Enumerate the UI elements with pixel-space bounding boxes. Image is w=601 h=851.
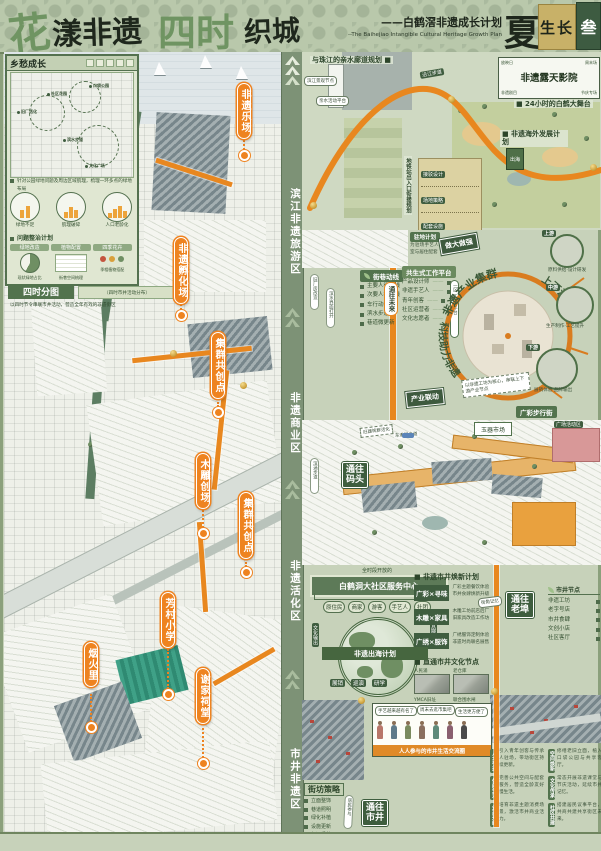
industry-diagram-band: 旧厂房改造 滨水界面打开 通往未来 街巷动线 主要人行动线 次要人行动线 车行动… xyxy=(302,230,601,420)
legend-item: 社区客厅 xyxy=(548,634,570,643)
street-tag-text: 广彩步行街 xyxy=(520,407,553,417)
subtitle-cn: ——白鹤滘非遗成长计划 xyxy=(330,14,502,30)
midstream-note: 生产制作·工艺提升 xyxy=(546,324,600,331)
plaza-label: 广场活动区 xyxy=(554,421,583,428)
oversea-note: ■ 非遗海外发展计划 xyxy=(500,130,568,147)
table-col-header: 植物配置 xyxy=(51,244,90,251)
street-road xyxy=(490,713,601,736)
roof-row xyxy=(361,481,417,513)
street-tag: 广彩步行街 xyxy=(516,406,557,418)
mini-plan xyxy=(302,230,408,268)
cinema-title: 非遗露天影院 xyxy=(499,70,599,84)
node-marker xyxy=(240,382,247,389)
node-marker xyxy=(358,697,365,704)
legend-item: 文创小店 xyxy=(548,625,570,634)
map-pin-label: 文化广场 xyxy=(89,163,105,169)
chevron-up-icon xyxy=(285,680,300,689)
chart-label: 人口老龄化 xyxy=(102,222,132,228)
speech-bubble: 滨江景观节点 xyxy=(304,76,337,86)
upstream-tag: 上游 xyxy=(542,230,556,237)
legend-item: 老字号店 xyxy=(548,606,570,615)
legend: 市井节点 非遗工坊 老字号店 市井食肆 文创小店 社区客厅 xyxy=(548,585,600,644)
pair-tag: 木雕×家具 xyxy=(414,609,449,625)
future-bubble: 通往未来 xyxy=(384,282,398,316)
inset-map: 旧厂活化 社区花园 口袋公园 滨水步道 文化广场 xyxy=(10,72,134,178)
street-axon-image-right xyxy=(490,695,601,743)
poster: 花 漾非遗 四时 织城 ——白鹤滘非遗成长计划 --The Baihejiao … xyxy=(0,0,601,851)
cinema-tag: 节庆专场 xyxy=(581,90,597,96)
section-header: 社区共建 xyxy=(548,803,555,827)
map-pin-label: 旧厂活化 xyxy=(21,109,37,115)
org-chip: 原住民 xyxy=(323,601,346,613)
side-pill: 滨涌步道 xyxy=(310,458,319,494)
legend-item: 市井食肆 xyxy=(548,616,570,625)
sailboat-icon xyxy=(154,62,166,75)
cinema-tag: 周末场 xyxy=(585,60,597,66)
callout-cluster-point-1: 集群共创点 xyxy=(211,332,225,399)
nav-dock: 通往码头 xyxy=(342,462,368,488)
legend-item: 非遗工坊 xyxy=(548,597,570,606)
nav-market: 通往市井 xyxy=(362,800,388,826)
sailboat-icon xyxy=(236,66,248,79)
downstream-note: 展销体验·品牌输出 xyxy=(534,388,594,395)
node-marker xyxy=(310,202,317,209)
map-pin-label: 滨水步道 xyxy=(67,137,83,143)
upstream-circle xyxy=(550,234,584,268)
globe-pill: 研学 xyxy=(372,679,387,687)
globe-pill: 展销 xyxy=(330,679,345,687)
roof-row xyxy=(431,458,492,484)
midstream-tag: 中游 xyxy=(546,284,560,291)
village-plan: 通往码头 玉器市场 广场活动区 东漖涌步道 旧建筑群活化 滨涌步道 xyxy=(302,420,601,565)
callout-incubator: 非遗孵化场 xyxy=(174,237,188,304)
speech-bubble: 周末去逛市集吧 xyxy=(417,705,455,715)
strategy-header: 街坊策略 xyxy=(304,783,344,796)
car-icon xyxy=(402,433,414,438)
node-marker xyxy=(491,688,498,695)
cinema-info-box: 放映日 周末场 非遗露天影院 非遗剧目 节庆专场 xyxy=(498,57,600,99)
chevron-up-icon xyxy=(285,670,300,679)
zone-label-4: 市井非遗区 xyxy=(282,704,303,851)
globe-pill: 巡演 xyxy=(351,679,366,687)
node-marker xyxy=(170,350,177,357)
zone-strip: 滨江非遗旅游区 非遗商业区 非遗活化区 市井非遗区 xyxy=(281,52,304,832)
flower-icon xyxy=(100,256,106,262)
note-pill: 滨水界面打开 xyxy=(326,288,335,328)
photo-thumb xyxy=(453,674,489,694)
section-text: 完善公共空间与配套服务，营造全龄友好慢生活。 xyxy=(499,776,544,800)
callout-woodcarving: 木雕创场 xyxy=(196,453,210,509)
callout-dot xyxy=(86,722,97,733)
strategy-item: 设施更新 xyxy=(311,823,331,832)
downstream-tag: 下游 xyxy=(526,344,540,351)
person-figure xyxy=(391,725,397,739)
table-col-header: 绿地改造 xyxy=(10,244,49,251)
metro-strip-label: 地铁站出入口衔接规划 xyxy=(404,156,412,215)
table-col-note: 现状绿地占比 xyxy=(10,275,49,281)
pair-line: 市井食肆焕新升级 xyxy=(452,592,489,597)
callout-dot xyxy=(213,407,224,418)
subtitle-block: ——白鹤滘非遗成长计划 --The Baihejiao Intangible C… xyxy=(330,14,502,38)
person-figure xyxy=(433,725,439,739)
analysis-header-text: 乡愁成长 xyxy=(10,57,46,70)
people-banner: 人人参与的市井生活交流圈 xyxy=(373,745,491,756)
panel-subheader: 配套设施 xyxy=(421,223,445,230)
pair-tag: 广彩×寻味 xyxy=(414,585,449,601)
title-part-4: 织城 xyxy=(243,9,300,51)
waterfront-header: 与珠江的亲水廊道规划 ■ xyxy=(310,56,393,64)
people-panel: 手艺越来越有名了 周末去逛市集吧 生活更方便了 人人参与的市井生活交流圈 xyxy=(372,703,492,757)
pair-line: 木雕工坊前店后厂 xyxy=(452,609,489,614)
nav-oldport: 通往老埠 xyxy=(506,592,534,618)
map-pin-label: 口袋公园 xyxy=(93,83,109,89)
upstream-note: 原料供给·设计研发 xyxy=(548,268,600,275)
callout-ancestral-hall: 谢家祠堂 xyxy=(196,668,210,724)
person-figure xyxy=(447,725,453,739)
plant-icons xyxy=(93,251,132,267)
person-figure xyxy=(405,725,411,739)
lane-item: 巷道微更新 xyxy=(367,319,395,328)
org-chip: 商家 xyxy=(348,601,365,613)
globe-banner: 非遗出海计划 xyxy=(322,647,428,660)
section-text: 培育非遗主题消费场景，激活市井商业活力。 xyxy=(499,803,544,827)
sailboat-icon xyxy=(200,55,212,68)
treatment-table: 绿地改造 现状绿地占比 植物配置 街巷空间梳理 四季花卉 季相 xyxy=(10,244,132,281)
callout-dot xyxy=(241,567,252,578)
callout-dot xyxy=(163,689,174,700)
pair-line: 非遗时尚联名展售 xyxy=(452,640,489,645)
season-character: 夏 xyxy=(504,4,540,56)
renew-header: ■ 非遗市井焕新计划 xyxy=(414,573,479,581)
legend-header: 市井节点 xyxy=(556,585,580,594)
renew-pair-2: 木雕×家具 木雕工坊前店后厂旧家具改造工作坊 xyxy=(414,609,496,625)
lanes-header: 街巷动线 xyxy=(360,270,403,282)
strategy-item: 立面整饰 xyxy=(311,797,331,806)
chevron-up-icon xyxy=(285,56,300,65)
callout-heritage-playground: 非遗乐场 xyxy=(237,83,251,139)
strategy-item: 巷道照明 xyxy=(311,806,331,815)
seasonal-band-title: 四时分图 xyxy=(8,284,74,299)
people-row xyxy=(377,720,467,739)
waterfront-plan: 与珠江的亲水廊道规划 ■ 滨江景观节点 亲水活动平台 沿江步道 放映日 周末场 … xyxy=(302,52,601,230)
chevron-up-icon xyxy=(285,76,300,85)
problem-chart-1 xyxy=(10,192,40,222)
speech-bubble: 生活更方便了 xyxy=(455,707,488,717)
chart-label: 肌理破碎 xyxy=(56,222,86,228)
urban-blocks xyxy=(144,220,266,292)
oversea-poster-tile: 出海 xyxy=(506,148,524,170)
cinema-tag: 放映日 xyxy=(501,60,513,66)
bottom-band: 街坊策略 立面整饰 巷道照明 绿化补植 设施更新 标识系统 居民参与 通往市井 … xyxy=(302,695,601,832)
callout-dot xyxy=(198,528,209,539)
strategy-item: 绿化补植 xyxy=(311,814,331,823)
lanes-header-text: 街巷动线 xyxy=(373,271,399,281)
photo-thumb xyxy=(414,674,450,694)
analysis-panel-header: 乡愁成长 xyxy=(7,56,137,71)
map-pin-label: 社区花园 xyxy=(51,91,67,97)
callout-dot xyxy=(239,150,250,161)
tilted-pill: 居民参与 xyxy=(343,795,354,829)
treatment-subheader-text: 问题整治计划 xyxy=(17,234,53,244)
org-chip: 游客 xyxy=(368,601,385,613)
footer-strip xyxy=(0,832,601,851)
section-text: 搭建居民议事平台，共商共建共享街区未来。 xyxy=(557,803,601,827)
platform-item: 青年创客 xyxy=(402,297,424,306)
green-ratio-donut xyxy=(20,253,40,273)
roof-row xyxy=(491,474,543,498)
orange-courtyard xyxy=(512,502,576,546)
header-band: 花 漾非遗 四时 织城 ——白鹤滘非遗成长计划 --The Baihejiao … xyxy=(0,0,601,54)
leaf-icon xyxy=(548,587,554,593)
callout-dot xyxy=(198,758,209,769)
street-axon-image xyxy=(302,700,364,780)
resident-header: 驻地计划 xyxy=(410,232,440,242)
metro-detail-panel: 接驳设计 场地策略 配套设施 xyxy=(418,158,482,230)
urban-blocks xyxy=(31,300,107,397)
leaf-icon xyxy=(364,273,370,279)
pair-line: 旧家具改造工作坊 xyxy=(452,616,489,621)
cinema-tag: 非遗剧目 xyxy=(501,90,517,96)
pond xyxy=(422,516,448,530)
section-text: 修缮老旧立面，植入口袋公园与共享客厅。 xyxy=(557,749,601,773)
subtitle-en: --The Baihejiao Intangible Cultural Heri… xyxy=(330,32,502,38)
person-figure xyxy=(419,725,425,739)
zone-label-2: 非遗商业区 xyxy=(282,348,303,498)
callout-cluster-point-2: 集群共创点 xyxy=(239,492,253,559)
season-word-tile: 生长 xyxy=(538,4,576,50)
node-marker xyxy=(448,96,455,103)
title-part-2: 漾非遗 xyxy=(51,6,142,53)
resident-header-text: 驻地计划 xyxy=(414,233,436,241)
pair-line: 广彩主题餐饮体验 xyxy=(452,585,489,590)
plant-icon xyxy=(118,256,124,262)
callout-primary-school: 芳村小学 xyxy=(161,592,175,648)
tilted-note: 旧建筑群活化 xyxy=(360,424,394,438)
globe-tag-left: 文化输出 xyxy=(312,623,319,647)
midstream-circle xyxy=(556,286,594,324)
panel-subheader: 接驳设计 xyxy=(421,171,445,178)
zone-label-3: 非遗活化区 xyxy=(282,516,303,666)
note-pill: 旧厂房改造 xyxy=(310,274,319,310)
community-band: 全时段开放的 白鹤洞大社区服务中心 原住民 商家 游客 手艺人 社团 非遗出海计… xyxy=(302,565,601,695)
street-sketch xyxy=(55,254,87,272)
org-chip: 手艺人 xyxy=(389,601,412,613)
red-plaza xyxy=(552,428,600,462)
person-figure xyxy=(377,725,383,739)
left-axonometric-map: 乡愁成长 旧厂活化 社区花园 口袋公园 滨水步道 文化广场 针对公园绿地问题及周… xyxy=(4,52,281,832)
jade-market-label: 玉器市场 xyxy=(474,422,512,436)
problem-chart-3 xyxy=(102,192,132,222)
problem-charts: 绿地不足 肌理破碎 人口老龄化 xyxy=(10,192,132,228)
globe-pills: 展销 巡演 研学 xyxy=(330,679,387,687)
table-col-note: 季相植物搭配 xyxy=(93,267,132,273)
section-header: 空间焕新 xyxy=(548,749,555,773)
flower-icon xyxy=(109,256,115,262)
chart-label: 绿地不足 xyxy=(10,222,40,228)
speech-bubble: 手艺越来越有名了 xyxy=(375,706,417,716)
chevron-up-icon xyxy=(285,66,300,75)
speech-bubble: 亲水活动平台 xyxy=(316,96,349,106)
table-col-header: 四季花卉 xyxy=(93,244,132,251)
title-part-3: 四时 xyxy=(158,2,234,57)
seasonal-band-note: （四时市井活动分布） xyxy=(78,286,176,299)
analysis-panel: 乡愁成长 旧厂活化 社区花园 口袋公园 滨水步道 文化广场 针对公园绿地问题及周… xyxy=(5,54,139,286)
callout-dot xyxy=(176,310,187,321)
sections-col-2: 空间焕新修缮老旧立面，植入口袋公园与共享客厅。 文化传承常态开展非遗课堂与节庆活… xyxy=(548,749,601,827)
table-col-note: 街巷空间梳理 xyxy=(51,275,90,281)
section-text: 引入青年创客与传承人驻场，带动街区持续更新。 xyxy=(499,749,544,773)
section-text: 常态开展非遗课堂与节庆活动，延续市井记忆。 xyxy=(557,776,601,800)
zone-label-1: 滨江非遗旅游区 xyxy=(282,132,303,332)
panel-subheader: 场地策略 xyxy=(421,197,445,204)
problem-chart-2 xyxy=(56,192,86,222)
person-figure xyxy=(461,725,467,739)
stage-note: ■ 24小时的白鹤大舞台 xyxy=(514,100,593,108)
node-marker xyxy=(590,164,597,171)
section-header: 文化传承 xyxy=(548,776,555,800)
callout-yanhuoli: 烟火里 xyxy=(84,642,98,687)
board-number-tile: 叁 xyxy=(576,2,601,50)
treatment-subheader: 问题整治计划 xyxy=(10,234,53,244)
pair-line: 广绣服饰定制体验 xyxy=(452,633,489,638)
downstream-circle xyxy=(536,348,578,390)
